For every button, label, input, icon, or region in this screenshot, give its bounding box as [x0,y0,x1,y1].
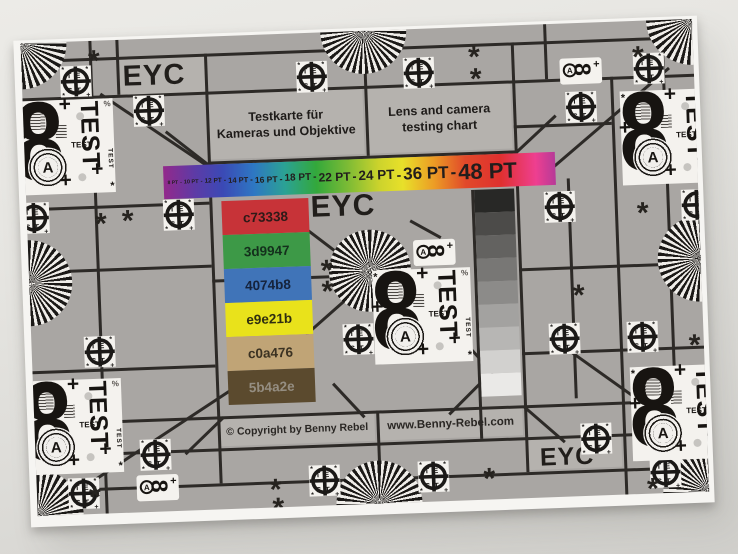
german-title: Testkarte für Kameras und Objektive [207,88,364,160]
plus-mark: + [448,332,461,346]
plus-mark: + [170,475,177,487]
asterisk-mark: * [95,217,107,231]
test-label-small: TEST [79,420,100,430]
pt-separator: - [313,172,317,183]
test-crosshair-target: ***+TEST [416,459,451,494]
svg-text:*: * [404,58,407,65]
svg-text:*: * [405,84,408,90]
plus-mark: + [416,267,429,281]
svg-text:*: * [311,492,314,498]
grayscale-step [477,257,518,281]
grayscale-step [477,280,518,304]
color-patch-tan: c0a476 [226,334,314,371]
svg-text:+: + [166,465,170,472]
plus-mark: + [99,442,112,456]
asterisk-mark: * [119,463,124,470]
asterisk-mark: * [647,482,659,496]
test-crosshair-target: ***+TEST [307,463,342,498]
grayscale-step [478,303,519,327]
test-crosshair-target: ***+TEST [679,187,709,222]
svg-text:*: * [134,96,137,103]
svg-text:*: * [658,53,661,60]
asterisk-mark: * [110,183,115,190]
svg-text:+: + [159,121,163,128]
grayscale-step [480,349,521,373]
pt-size-label: 48 PT [458,157,518,185]
svg-text:*: * [109,336,112,343]
test-label-tiny: TEST [115,428,123,449]
svg-text:*: * [574,323,577,330]
sideways-8: 8 [422,244,449,258]
siemens-star-left [28,239,74,327]
test-label-small: TEST [71,140,92,150]
svg-text:*: * [142,466,145,472]
svg-text:*: * [368,324,371,331]
resolution-8-target: **8ATESTTESTTEST++++% [630,364,710,462]
grid-line [543,24,548,79]
svg-text:*: * [321,61,324,68]
grayscale-step [474,188,515,212]
diagonal-line [409,219,441,239]
pt-separator: - [180,179,182,185]
chart-print-area: EYC EYC EYC Testkarte für Kameras und Ob… [20,19,709,516]
percent-mark: % [103,99,110,108]
test-crosshair-target: ***+TEST [161,197,196,232]
test-label-tiny: TEST [464,317,472,338]
svg-text:*: * [546,218,549,224]
pt-separator: - [224,177,227,184]
test-label-vertical: TEST [679,90,710,159]
plus-mark: + [67,378,80,392]
asterisk-mark: * [483,472,495,486]
color-patch-label: e9e21b [246,310,292,327]
test-crosshair-target: ***+TEST [547,321,582,356]
svg-text:*: * [628,322,631,329]
svg-text:*: * [20,229,23,235]
gray-dot [78,173,86,181]
asterisk-mark: * [689,339,701,353]
pt-separator: - [279,173,282,183]
svg-text:*: * [141,440,144,447]
svg-text:*: * [419,462,422,469]
color-patch-label: c73338 [243,208,289,225]
color-patch-brown: 5b4a2e [228,368,316,405]
asterisk-mark: * [470,73,482,87]
plus-mark: + [664,163,677,177]
diagonal-line [514,115,557,155]
svg-text:*: * [85,337,88,344]
resolution-8-target: **8ATESTTESTTEST++++% [620,88,710,186]
svg-text:*: * [345,351,348,357]
percent-mark: % [708,89,709,98]
letter-a-target: A [46,437,67,458]
svg-text:*: * [61,67,64,74]
asterisk-mark: * [632,51,644,65]
svg-text:*: * [582,424,585,431]
svg-text:*: * [334,465,337,472]
mini-8-target: A8+ [136,474,179,502]
pt-size-label: 12 PT [204,177,222,185]
svg-text:*: * [344,325,347,332]
plus-mark: + [22,411,35,425]
test-crosshair-target: ***+TEST [401,55,436,90]
mini-8-target: A8+ [559,57,602,85]
test-label-small: TEST [686,406,707,416]
svg-text:*: * [310,466,313,473]
test-crosshair-target: ***+TEST [20,200,51,235]
svg-text:*: * [188,199,191,206]
svg-text:*: * [20,203,22,210]
english-title: Lens and camera testing chart [366,83,512,154]
pt-size-label: 24 PT [358,167,395,183]
asterisk-mark: * [122,214,134,228]
grayscale-wedge [474,188,522,396]
resolution-8-target: **8ATESTTESTTEST++++% [23,378,124,476]
asterisk-mark: * [468,352,473,359]
svg-text:*: * [568,118,571,124]
letter-a-target: A [653,423,674,444]
pt-separator: - [200,178,202,184]
resolution-8-target: **8ATESTTESTTEST++++% [372,267,473,365]
test-crosshair-target: ***+TEST [294,59,329,94]
plus-mark: + [91,162,104,176]
percent-mark: % [461,268,468,277]
pt-size-label: 22 PT [318,169,351,184]
siemens-star-right [656,216,702,304]
pt-separator: - [396,166,401,182]
test-crosshair-target: ***+TEST [341,322,376,357]
svg-text:*: * [683,216,686,222]
svg-text:*: * [297,62,300,69]
svg-text:*: * [551,350,554,356]
svg-text:*: * [70,505,73,511]
gray-dot [436,342,444,350]
plus-mark: + [67,454,80,468]
svg-text:*: * [545,192,548,199]
plus-mark: + [58,98,71,112]
svg-text:*: * [298,88,301,94]
grayscale-step [479,326,520,350]
pt-separator: - [250,175,253,184]
svg-text:*: * [428,57,431,64]
letter-a-target: A [395,326,416,347]
test-crosshair-target: ***+TEST [579,421,614,456]
svg-text:*: * [591,91,594,98]
pt-size-label: 8 PT [168,179,179,185]
color-patch-label: c0a476 [248,344,294,361]
eyc-label-center: EYC [310,189,376,225]
asterisk-mark: * [89,491,101,505]
plus-mark: + [663,87,676,101]
pt-size-label: 16 PT [255,174,278,185]
svg-text:*: * [583,450,586,456]
color-patch-green: 3d9947 [223,232,311,269]
svg-text:*: * [443,461,446,468]
diagonal-line [165,130,211,167]
plus-mark: + [417,343,430,357]
plus-mark: + [20,131,26,145]
gray-dot [86,453,94,461]
svg-text:*: * [567,92,570,99]
test-crosshair-target: ***+TEST [542,189,577,224]
plus-mark: + [629,397,642,411]
svg-text:*: * [550,324,553,331]
plus-mark: + [706,428,709,442]
color-patch-label: 3d9947 [244,242,290,259]
asterisk-mark: * [272,502,284,516]
svg-text:*: * [682,190,685,197]
asterisk-mark: * [24,385,29,392]
svg-text:+: + [707,215,709,222]
plus-mark: + [446,240,453,252]
svg-text:*: * [165,439,168,446]
pt-size-label: 18 PT [284,172,311,184]
test-label-small: TEST [676,130,697,140]
copyright-label: © Copyright by Benny Rebel [219,413,375,447]
test-label-small: TEST [428,309,449,319]
test-crosshair-target: ***+TEST [82,334,117,369]
plus-mark: + [674,363,687,377]
asterisk-mark: * [637,207,649,221]
letter-a-target: A [38,157,59,178]
color-patch-red: c73338 [221,198,309,235]
color-patch-yellow: e9e21b [225,300,313,337]
english-title-line2: testing chart [402,117,478,136]
svg-text:*: * [135,122,138,128]
photo-background: EYC EYC EYC Testkarte für Kameras und Ob… [0,0,738,554]
test-crosshair-target: ***+TEST [131,93,166,128]
eyc-label-top-left: EYC [122,58,186,93]
german-title-line2: Kameras und Objektive [217,121,356,142]
test-crosshair-target: ***+TEST [138,437,173,472]
plus-mark: + [371,300,384,314]
gray-dot [683,163,691,171]
grayscale-step [476,234,517,258]
svg-text:*: * [158,95,161,102]
plus-mark: + [696,152,709,166]
resolution-8-target: **8ATESTTESTTEST++++% [20,98,116,196]
plus-mark: + [619,121,632,135]
svg-text:+: + [570,217,574,224]
color-patch-blue: 4074b8 [224,266,312,303]
pt-size-label: 36 PT [403,162,449,184]
letter-a-target: A [643,147,664,168]
svg-text:+: + [44,229,48,236]
test-label-tiny: TEST [106,148,114,169]
svg-text:*: * [606,423,609,430]
plus-mark: + [674,439,687,453]
percent-mark: % [112,379,119,388]
mini-8-target: A8+ [413,239,456,267]
svg-text:+: + [189,225,193,232]
svg-text:+: + [444,487,448,494]
asterisk-mark: * [573,289,585,303]
svg-text:*: * [165,226,168,232]
plus-mark: + [59,174,72,188]
test-crosshair-target: ***+TEST [564,89,599,124]
sideways-8: 8 [568,62,595,76]
svg-text:*: * [569,191,572,198]
pt-separator: - [352,169,357,183]
svg-text:*: * [652,321,655,328]
asterisk-mark: * [321,285,333,299]
svg-text:*: * [164,200,167,207]
asterisk-mark: * [88,55,100,69]
test-chart-paper: EYC EYC EYC Testkarte für Kameras und Ob… [13,16,714,528]
gray-dot [693,439,701,447]
color-patch-label: 5b4a2e [248,378,294,395]
pt-size-label: 10 PT [184,179,199,186]
svg-text:*: * [420,488,423,494]
grayscale-step [475,211,516,235]
sideways-8: 8 [145,479,172,493]
pt-size-label: 14 PT [228,175,248,185]
color-patch-label: 4074b8 [245,276,291,293]
plus-mark: + [593,58,600,70]
color-patch-column: c73338 3d9947 4074b8 e9e21b c0a476 5b4a2… [221,198,315,405]
pt-separator: - [450,162,456,182]
website-label: www.Benny-Rebel.com [378,407,523,440]
siemens-star-top [320,29,408,75]
grayscale-step [481,372,522,396]
svg-text:*: * [706,189,709,196]
siemens-star-bottom [335,459,423,505]
svg-text:*: * [86,363,89,369]
